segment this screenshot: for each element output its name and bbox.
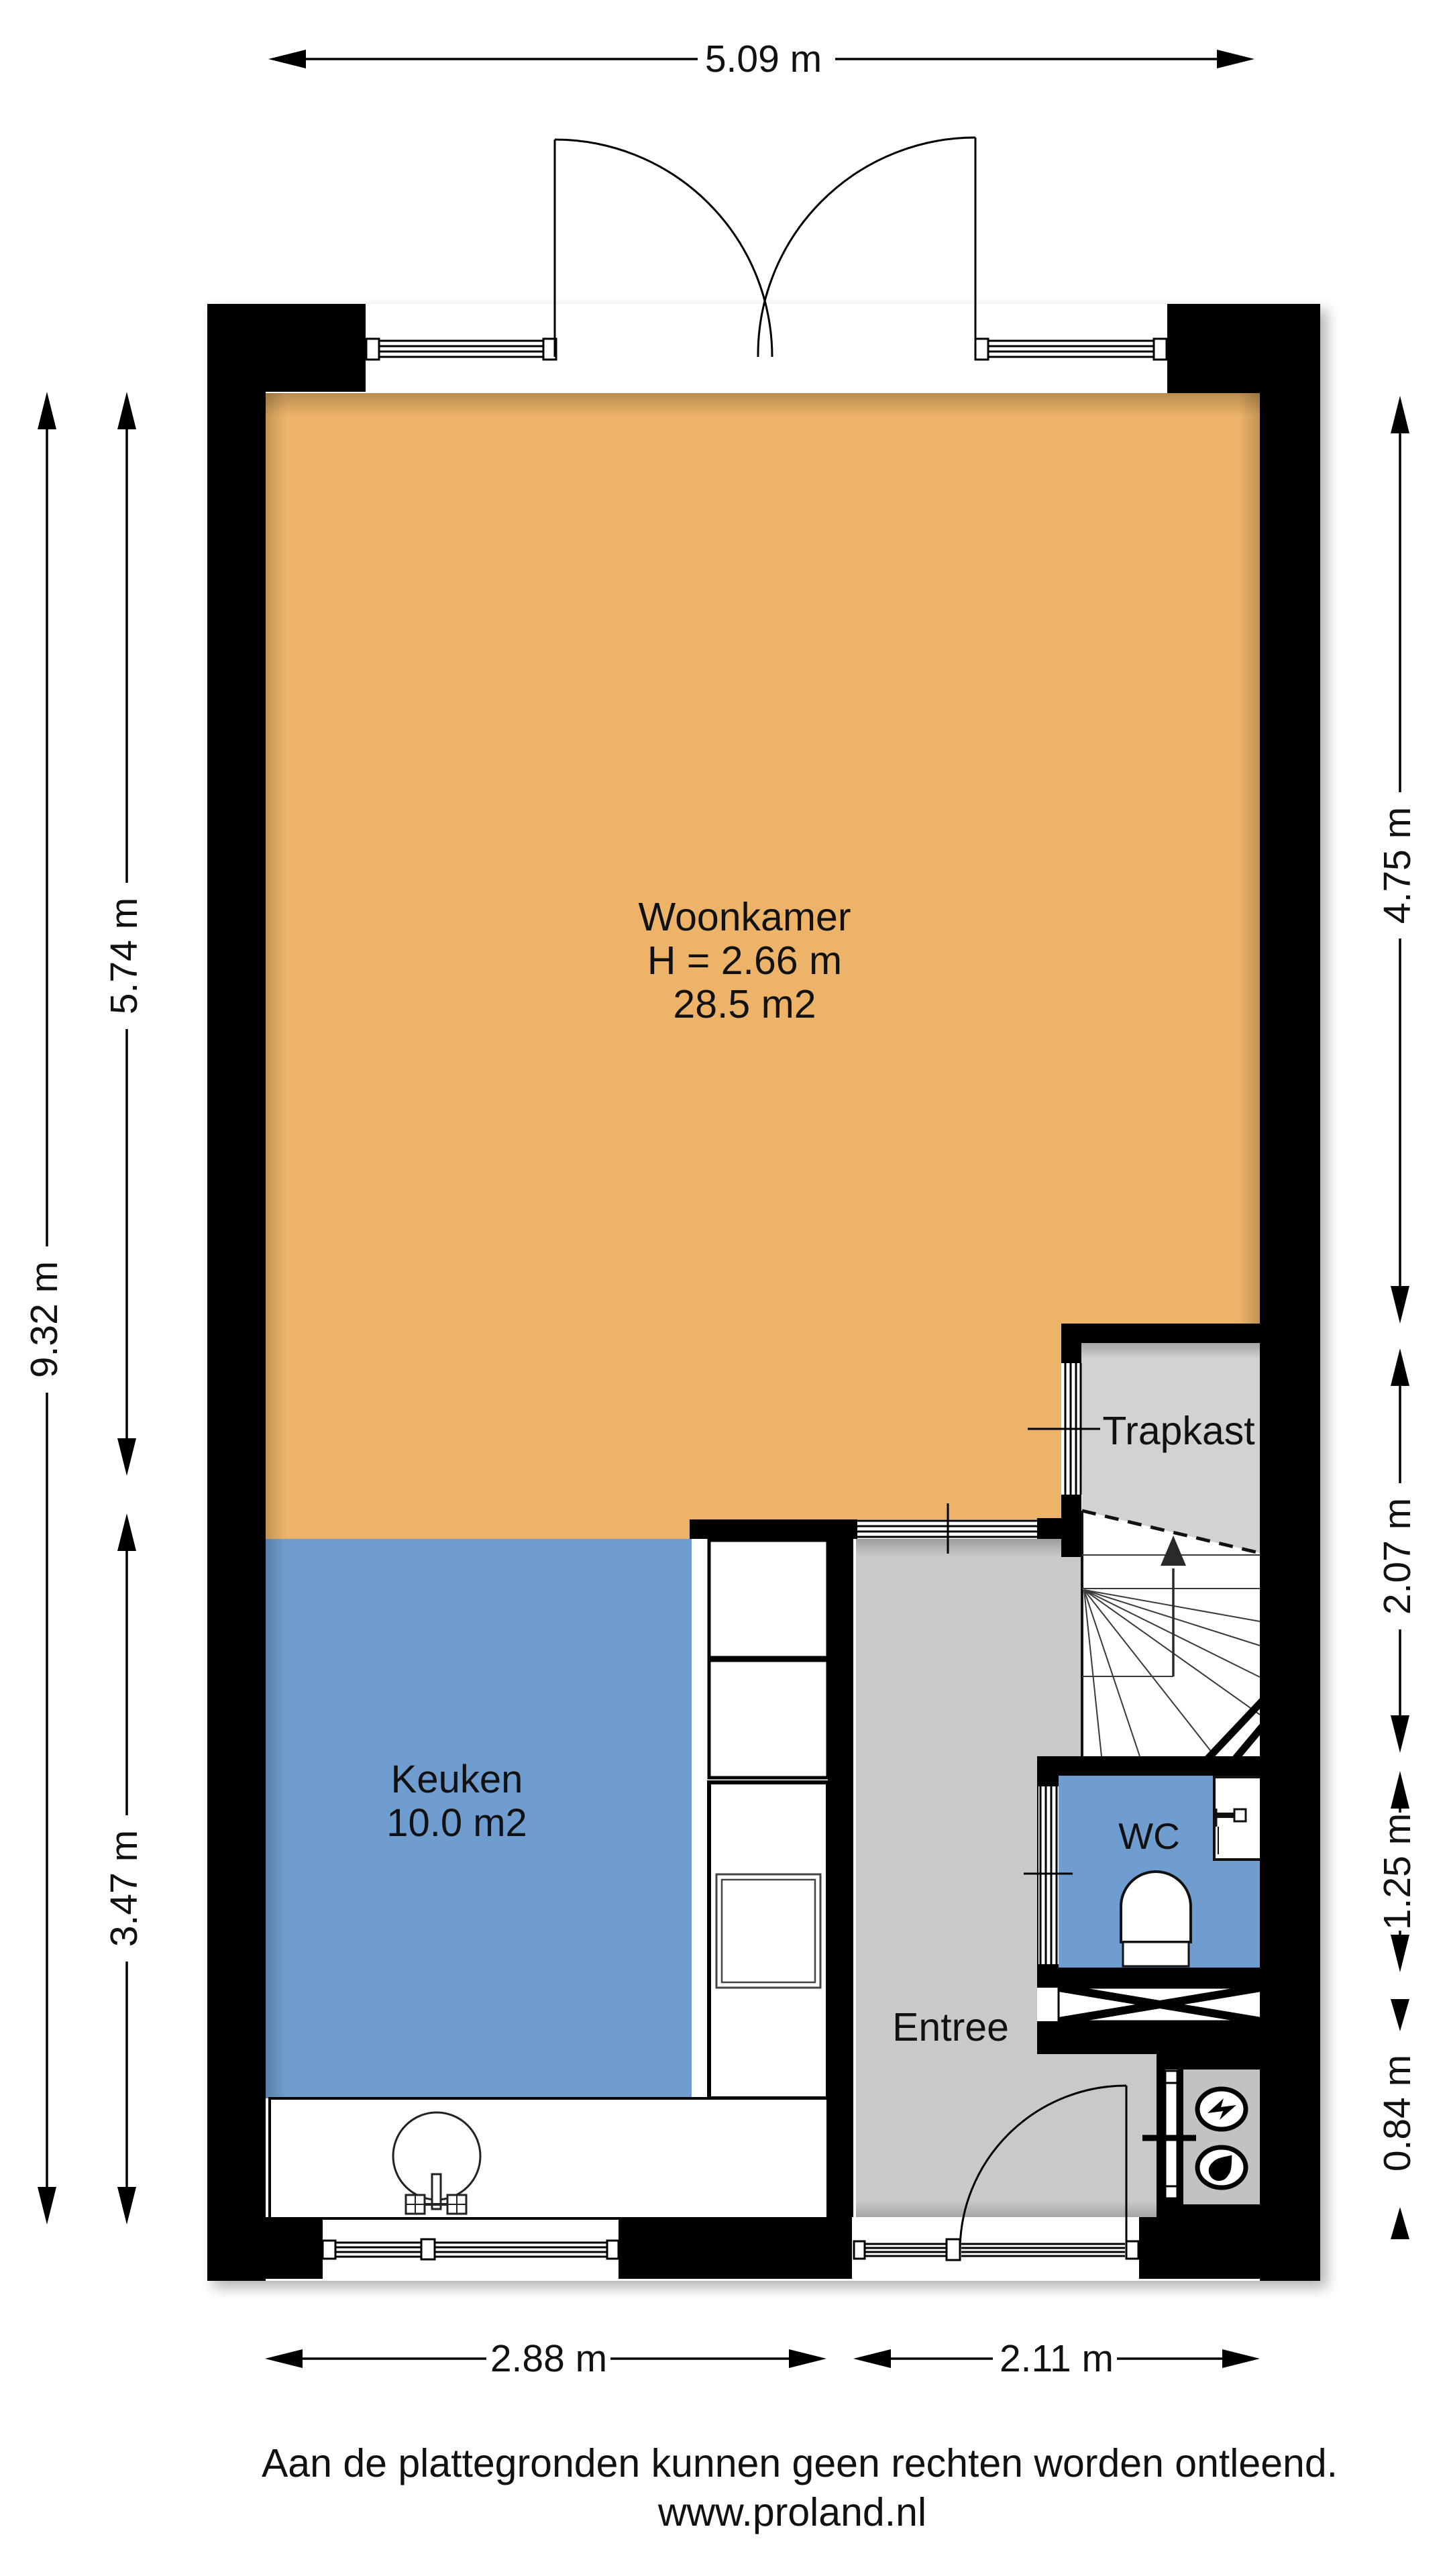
svg-text:1.25 m: 1.25 m — [1376, 1813, 1419, 1930]
svg-text:3.47 m: 3.47 m — [103, 1830, 146, 1947]
svg-text:9.32 m: 9.32 m — [23, 1261, 66, 1378]
svg-text:5.74 m: 5.74 m — [103, 898, 146, 1014]
svg-text:H = 2.66 m: H = 2.66 m — [647, 938, 842, 983]
svg-text:2.11 m: 2.11 m — [1000, 2337, 1114, 2380]
svg-text:0.84 m: 0.84 m — [1376, 2055, 1419, 2171]
svg-text:5.09 m: 5.09 m — [705, 38, 822, 80]
svg-text:Aan de plattegronden kunnen ge: Aan de plattegronden kunnen geen rechten… — [262, 2441, 1338, 2485]
svg-text:www.proland.nl: www.proland.nl — [657, 2490, 926, 2534]
svg-text:Keuken: Keuken — [391, 1758, 523, 1801]
svg-text:28.5 m2: 28.5 m2 — [673, 982, 816, 1026]
svg-text:4.75 m: 4.75 m — [1376, 807, 1419, 924]
svg-text:2.88 m: 2.88 m — [490, 2337, 607, 2380]
svg-text:Entree: Entree — [892, 2005, 1009, 2049]
svg-text:10.0 m2: 10.0 m2 — [386, 1801, 527, 1845]
svg-text:WC: WC — [1118, 1815, 1180, 1857]
svg-text:Trapkast: Trapkast — [1102, 1409, 1254, 1453]
svg-text:2.07 m: 2.07 m — [1376, 1498, 1419, 1615]
svg-text:Woonkamer: Woonkamer — [639, 895, 851, 939]
